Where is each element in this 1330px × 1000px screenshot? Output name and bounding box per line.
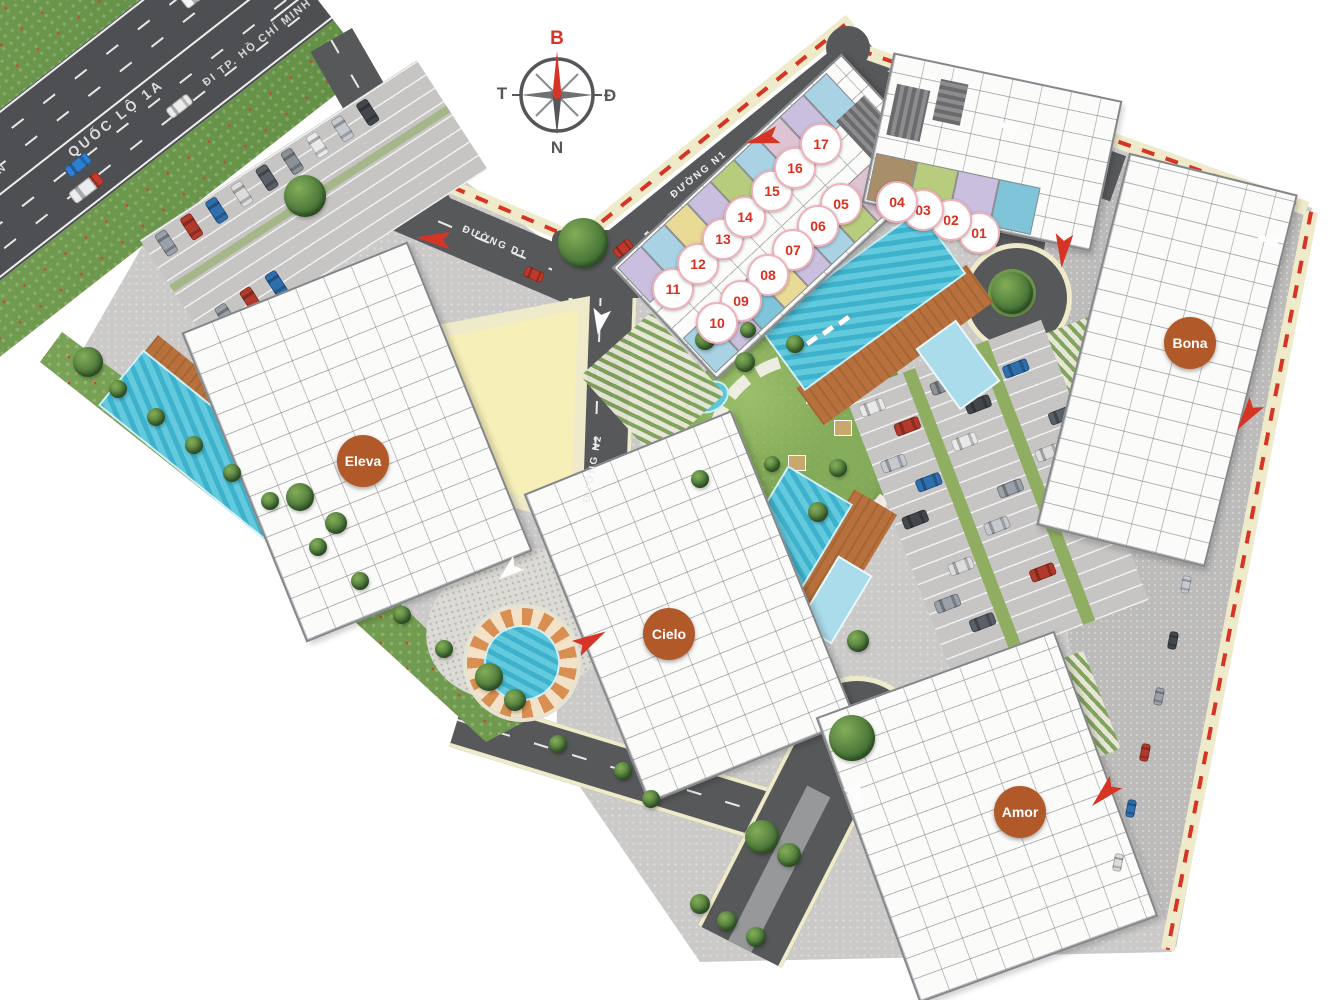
compass-south-label: N <box>544 138 570 158</box>
unit-marker-04[interactable]: 04 <box>876 181 918 223</box>
tree-icon <box>991 272 1033 314</box>
tower-badge-eleva[interactable]: Eleva <box>337 435 389 487</box>
compass-rose-icon <box>511 49 603 141</box>
tree-icon <box>829 459 847 477</box>
tree-icon <box>746 927 766 947</box>
tree-icon <box>764 456 780 472</box>
unit-marker-17[interactable]: 17 <box>800 123 842 165</box>
unit-marker-10[interactable]: 10 <box>696 302 738 344</box>
stair-core <box>932 79 968 126</box>
fountain-pool <box>484 625 560 701</box>
site-plan-map: QUỐC LỘ 1A ĐI TP. HỒ CHÍ MINH N ĐƯỜNG D1… <box>0 0 1330 1000</box>
parked-car <box>968 612 997 633</box>
parked-car <box>330 114 355 143</box>
parked-car <box>179 212 204 241</box>
parked-car <box>950 431 979 452</box>
tree-icon <box>351 572 369 590</box>
tree-icon <box>185 436 203 454</box>
highway-partial-label: N <box>0 161 9 176</box>
compass-east-label: Đ <box>600 86 620 106</box>
tree-icon <box>286 483 314 511</box>
tree-icon <box>847 630 869 652</box>
tree-icon <box>284 175 326 217</box>
tree-icon <box>475 663 503 691</box>
parked-car <box>858 397 887 418</box>
tree-icon <box>691 470 709 488</box>
parked-car <box>933 593 962 614</box>
parked-car <box>355 98 380 127</box>
parked-car <box>154 229 179 258</box>
tower-badge-bona[interactable]: Bona <box>1164 317 1216 369</box>
parked-car <box>901 509 930 530</box>
compass-west-label: T <box>492 84 512 104</box>
parked-car <box>914 472 943 493</box>
compass: B N T Đ <box>496 26 626 156</box>
tree-icon <box>829 715 875 761</box>
tree-icon <box>309 538 327 556</box>
tree-icon <box>614 762 632 780</box>
tree-icon <box>808 502 828 522</box>
stair-core <box>886 84 930 142</box>
tree-icon <box>786 335 804 353</box>
tree-icon <box>777 843 801 867</box>
tree-icon <box>740 322 756 338</box>
tree-icon <box>549 735 567 753</box>
tree-icon <box>642 790 660 808</box>
tree-icon <box>735 352 755 372</box>
parked-car <box>893 416 922 437</box>
tree-icon <box>558 218 608 268</box>
tower-badge-amor[interactable]: Amor <box>994 786 1046 838</box>
parked-car <box>996 478 1025 499</box>
parked-car <box>305 131 330 160</box>
tree-icon <box>223 464 241 482</box>
parked-car <box>255 163 280 192</box>
parked-car <box>947 556 976 577</box>
garden-pavilion <box>834 420 852 436</box>
tree-icon <box>717 911 737 931</box>
parked-car <box>204 196 229 225</box>
tree-icon <box>261 492 279 510</box>
tree-icon <box>393 606 411 624</box>
tree-icon <box>325 512 347 534</box>
parked-car <box>1028 562 1057 583</box>
compass-north-label: B <box>544 28 570 50</box>
tree-icon <box>147 408 165 426</box>
tree-icon <box>745 820 779 854</box>
tower-badge-cielo[interactable]: Cielo <box>643 608 695 660</box>
tree-icon <box>504 689 526 711</box>
parked-car <box>1001 358 1030 379</box>
tree-icon <box>109 380 127 398</box>
parked-car <box>280 147 305 176</box>
parked-car <box>229 180 254 209</box>
tree-icon <box>690 894 710 914</box>
parked-car <box>879 453 908 474</box>
tree-icon <box>73 347 103 377</box>
parked-car <box>982 515 1011 536</box>
tree-icon <box>435 640 453 658</box>
